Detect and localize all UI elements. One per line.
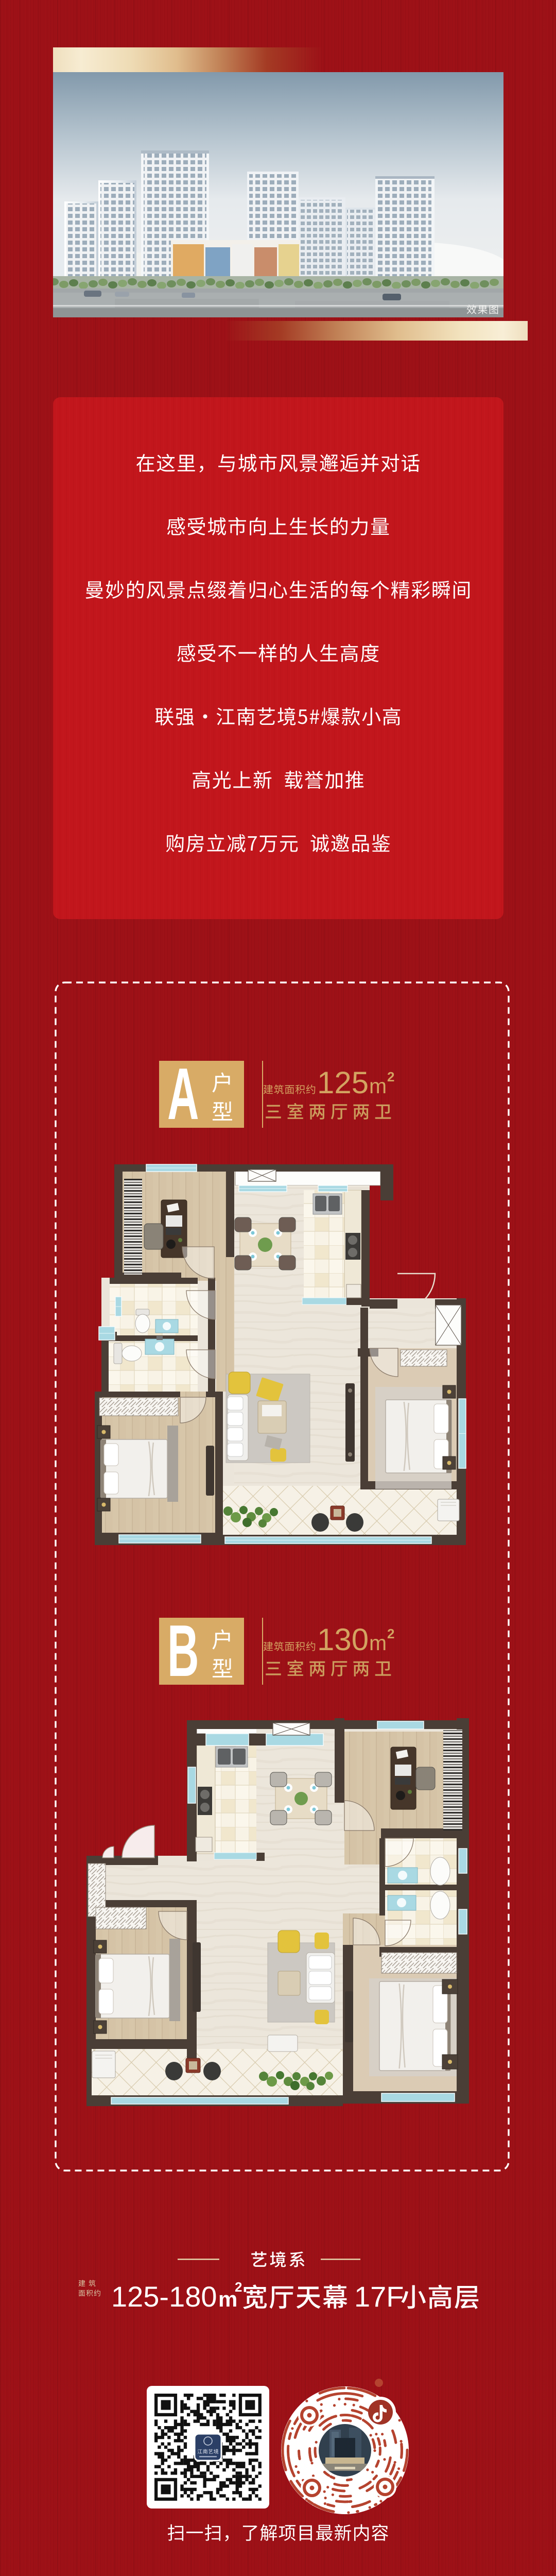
svg-text:2: 2	[235, 2279, 242, 2295]
svg-text:125-180: 125-180	[111, 2280, 217, 2313]
svg-text:m: m	[369, 1074, 387, 1098]
svg-text:2: 2	[387, 1069, 394, 1084]
svg-text:2780777: 2780777	[196, 2562, 473, 2576]
svg-text:B: B	[167, 1609, 199, 1691]
svg-text:m: m	[369, 1631, 387, 1655]
svg-text:125: 125	[317, 1065, 369, 1100]
svg-text:2: 2	[387, 1626, 394, 1641]
svg-text:130: 130	[317, 1622, 369, 1657]
svg-text:A: A	[167, 1053, 199, 1134]
svg-text:17F: 17F	[354, 2280, 404, 2313]
